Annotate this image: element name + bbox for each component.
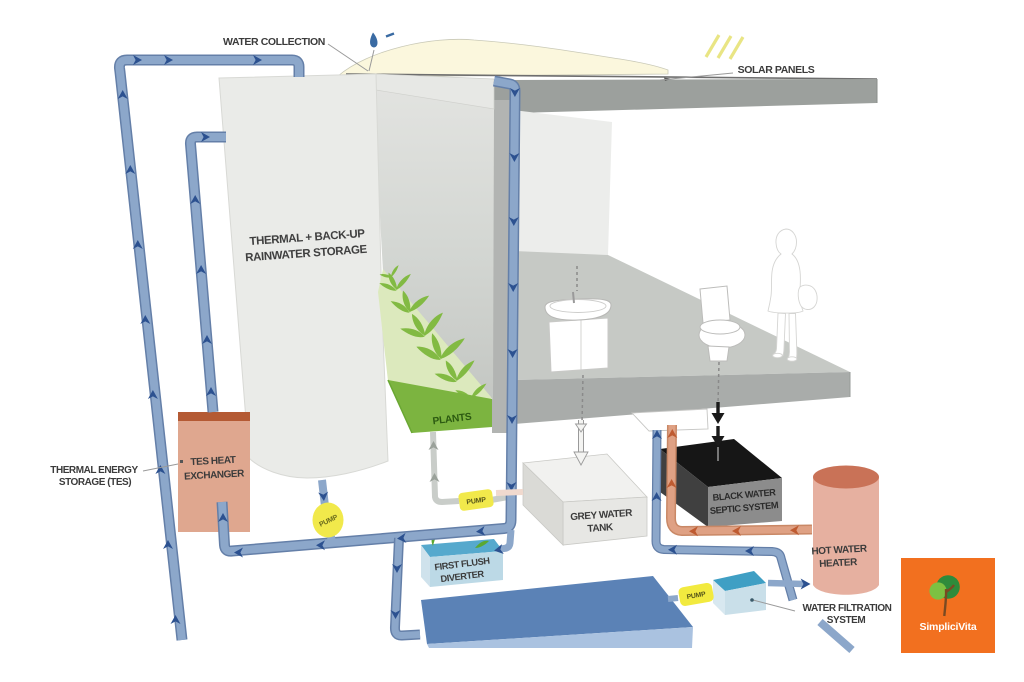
svg-text:WATER FILTRATION: WATER FILTRATION (803, 603, 892, 614)
svg-text:TANK: TANK (587, 522, 614, 535)
svg-text:WATER COLLECTION: WATER COLLECTION (223, 36, 325, 48)
svg-text:HEATER: HEATER (819, 557, 858, 570)
svg-text:THERMAL ENERGY: THERMAL ENERGY (50, 465, 138, 476)
svg-text:SOLAR PANELS: SOLAR PANELS (738, 64, 815, 76)
svg-text:SimpliciVita: SimpliciVita (920, 621, 977, 633)
svg-text:STORAGE (TES): STORAGE (TES) (59, 477, 131, 488)
svg-text:SYSTEM: SYSTEM (827, 615, 866, 626)
